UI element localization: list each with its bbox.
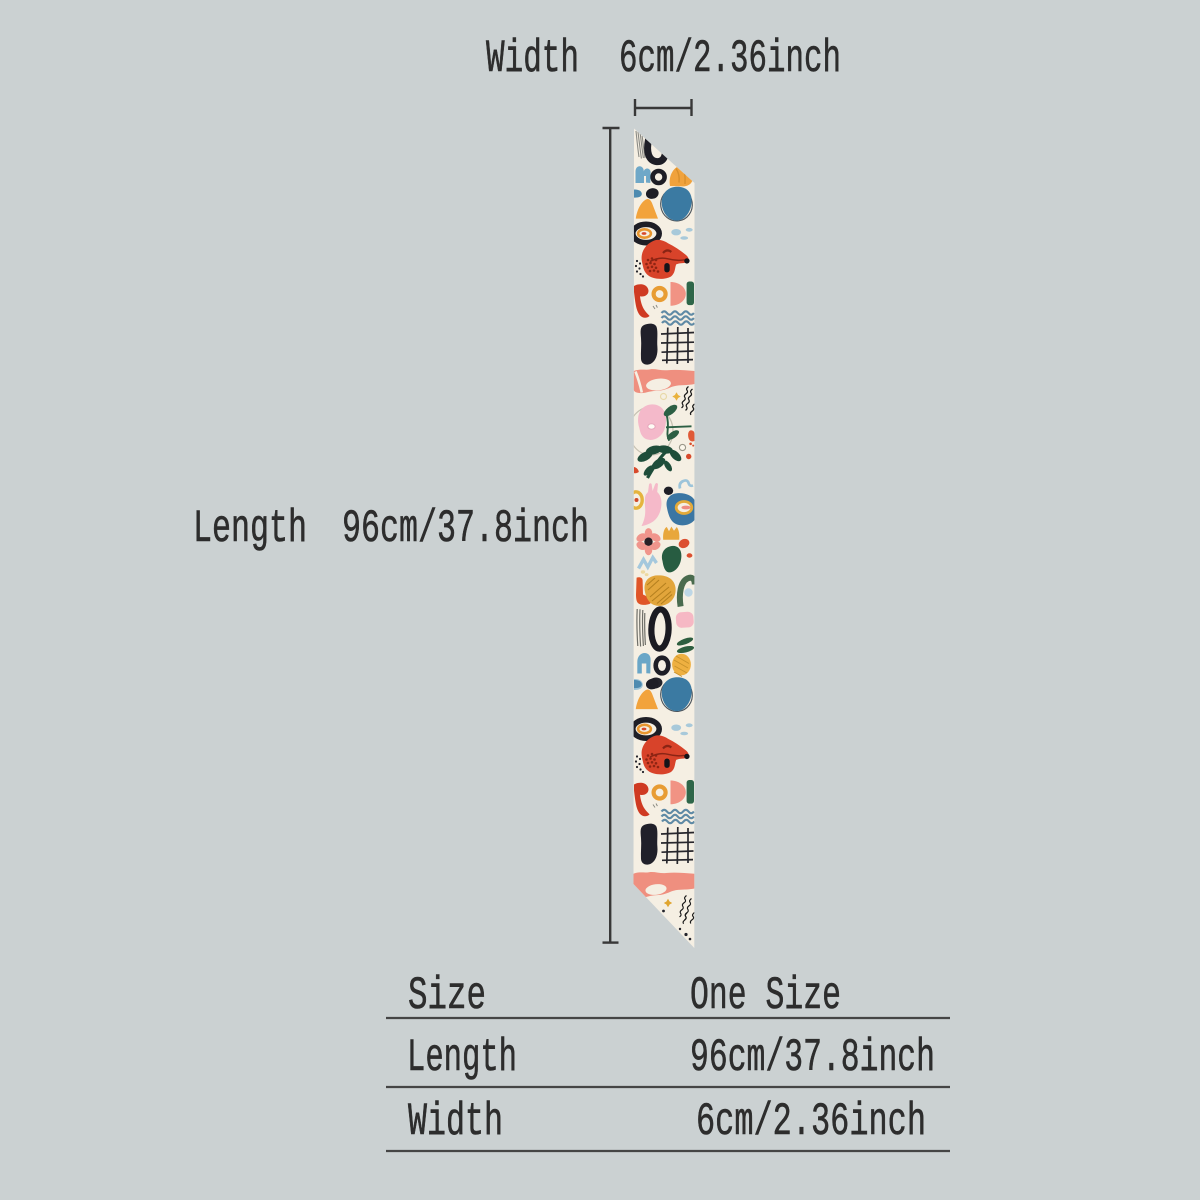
svg-text:96cm/37.8inch: 96cm/37.8inch (690, 1032, 935, 1084)
svg-text:Width: Width (486, 33, 579, 85)
svg-text:6cm/2.36inch: 6cm/2.36inch (619, 33, 841, 85)
svg-text:6cm/2.36inch: 6cm/2.36inch (696, 1096, 926, 1148)
svg-text:Width: Width (408, 1096, 503, 1148)
svg-text:One Size: One Size (690, 970, 841, 1022)
svg-text:96cm/37.8inch: 96cm/37.8inch (342, 503, 589, 555)
svg-text:Length: Length (407, 1032, 517, 1084)
svg-text:Length: Length (193, 503, 307, 555)
svg-text:Size: Size (408, 970, 486, 1022)
